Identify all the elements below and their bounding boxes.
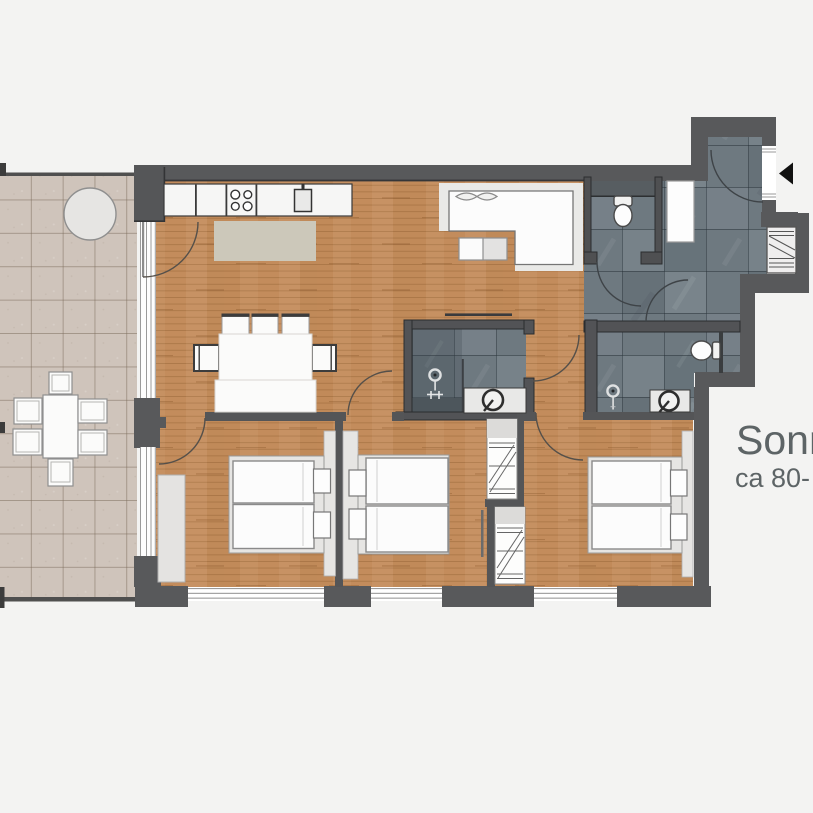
svg-text:ca 80-: ca 80- [735, 463, 810, 493]
svg-text:Sonne: Sonne [736, 417, 813, 463]
